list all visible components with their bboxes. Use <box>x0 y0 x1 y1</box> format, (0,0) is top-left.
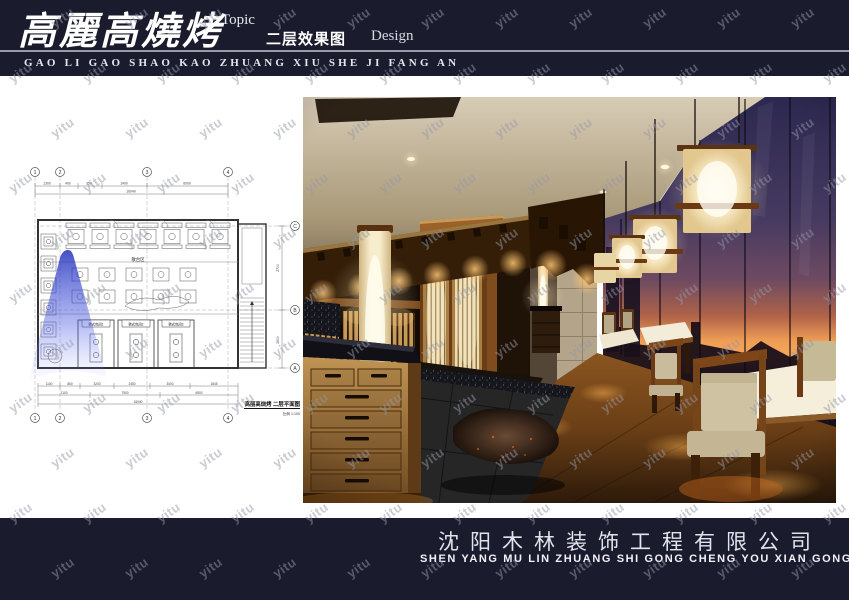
watermark-text: yitu <box>0 444 3 471</box>
dim-label: 350 <box>86 182 92 186</box>
plan-stair <box>240 228 264 362</box>
dim-label: 7900 <box>121 391 128 395</box>
watermark-text: yitu <box>196 444 225 471</box>
dim-label: 1300 <box>43 182 51 186</box>
watermark-text: yitu <box>196 114 225 141</box>
grid-bubble-label: 4 <box>227 170 230 176</box>
dim-label: 2700 <box>276 264 280 272</box>
plan-area-label: 散台区 <box>131 256 145 263</box>
dim-total: 16040 <box>126 190 136 194</box>
view-cone <box>28 250 107 382</box>
interior-rendering <box>303 97 836 503</box>
plan-caption-title: 高丽高烧烤 二层平面图 <box>245 400 301 408</box>
plan-caption: 高丽高烧烤 二层平面图 比例 1:100 <box>244 400 301 416</box>
dim-label: 2100 <box>60 391 67 395</box>
company-name: 沈阳木林装饰工程有限公司 <box>420 526 840 556</box>
plan-caption-scale: 比例 1:100 <box>283 411 300 416</box>
dim-label: 6900 <box>195 391 202 395</box>
page-title: 高麗高燒烤 <box>18 0 223 55</box>
rendering-image <box>303 97 836 503</box>
watermark-text: yitu <box>270 114 299 141</box>
presentation-board: 高麗高燒烤 Topic 二层效果图 Design GAO LI GAO SHAO… <box>0 0 849 600</box>
dim-label: 1845 <box>210 382 217 386</box>
watermark-text: yitu <box>0 114 3 141</box>
header-rule <box>0 50 849 52</box>
room-label: 韩式包间2 <box>128 321 143 326</box>
grid-bubble-label: 1 <box>34 170 37 176</box>
grid-bubble-label: 4 <box>227 416 230 422</box>
watermark-text: yitu <box>48 114 77 141</box>
header-pinyin: GAO LI GAO SHAO KAO ZHUANG XIU SHE JI FA… <box>24 57 459 69</box>
grid-bubble-label: C <box>293 224 297 230</box>
watermark-text: yitu <box>122 444 151 471</box>
dim-label: 3000 <box>166 382 173 386</box>
watermark-text: yitu <box>48 444 77 471</box>
header-band: 高麗高燒烤 Topic 二层效果图 Design GAO LI GAO SHAO… <box>0 0 849 76</box>
design-label: Design <box>371 28 414 45</box>
grid-bubble-label: 1 <box>34 416 37 422</box>
floor-plan-drawing: 1300 400 350 1400 6000 16040 1 2 3 4 <box>10 156 302 428</box>
dim-label: 400 <box>65 182 71 186</box>
grid-bubble-label: 3 <box>146 416 149 422</box>
room-label: 韩式包间3 <box>168 321 183 326</box>
company-name-pinyin: SHEN YANG MU LIN ZHUANG SHI GONG CHENG Y… <box>420 553 840 565</box>
dim-label: 860 <box>67 382 73 386</box>
grid-bubble-label: 2 <box>59 170 62 176</box>
dim-label: 1100 <box>46 382 53 386</box>
page-subtitle: 二层效果图 <box>266 28 346 49</box>
dim-label: 1400 <box>120 182 128 186</box>
dim-label: 2600 <box>276 336 280 344</box>
dim-label: 6000 <box>183 182 191 186</box>
grid-bubble-label: 3 <box>146 170 149 176</box>
dim-label: 2450 <box>128 382 135 386</box>
dim-total: 16040 <box>134 400 143 404</box>
plan-dims-right <box>278 226 286 368</box>
dim-label: 3200 <box>93 382 100 386</box>
vignette-overlay <box>303 97 836 503</box>
watermark-text: yitu <box>0 224 3 251</box>
watermark-text: yitu <box>122 114 151 141</box>
watermark-text: yitu <box>0 334 3 361</box>
grid-bubble-label: 2 <box>59 416 62 422</box>
floor-plan: 1300 400 350 1400 6000 16040 1 2 3 4 <box>10 156 302 428</box>
topic-label: Topic <box>221 12 255 29</box>
watermark-text: yitu <box>270 444 299 471</box>
plan-grid-bubbles-right <box>291 222 300 373</box>
